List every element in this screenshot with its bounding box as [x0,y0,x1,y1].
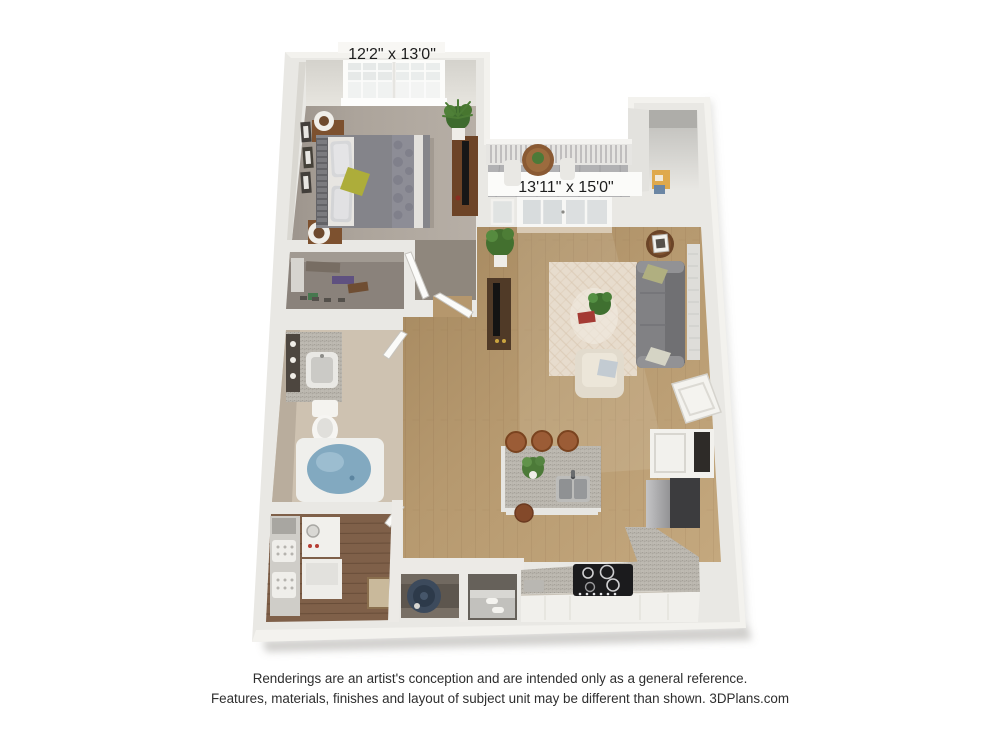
svg-text:13'11" x 15'0": 13'11" x 15'0" [518,179,613,196]
svg-text:12'2" x 13'0": 12'2" x 13'0" [348,46,436,63]
